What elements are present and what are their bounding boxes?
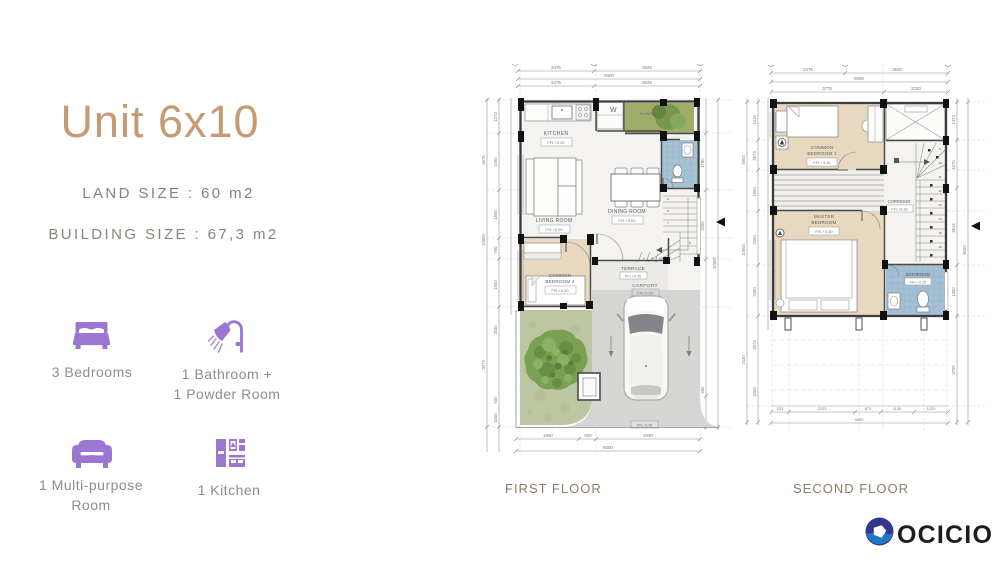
svg-text:3525: 3525: [642, 80, 652, 85]
svg-text:14: 14: [938, 217, 942, 221]
svg-text:LIVING ROOM: LIVING ROOM: [536, 218, 573, 224]
svg-text:2430: 2430: [741, 355, 746, 365]
svg-text:15: 15: [938, 231, 942, 235]
svg-text:1675: 1675: [951, 160, 956, 170]
svg-text:FFL-0.05: FFL-0.05: [637, 292, 652, 296]
svg-text:3750: 3750: [951, 365, 956, 375]
svg-text:3775: 3775: [822, 86, 832, 91]
svg-text:BEDROOM 2: BEDROOM 2: [545, 279, 575, 284]
svg-text:6000: 6000: [603, 445, 613, 450]
svg-text:CORRIDOR: CORRIDOR: [888, 199, 911, 204]
svg-text:FFL+0.00: FFL+0.00: [618, 218, 636, 223]
svg-text:3430: 3430: [643, 433, 653, 438]
svg-text:9000: 9000: [962, 245, 967, 255]
svg-text:FFL+3.30: FFL+3.30: [815, 229, 833, 234]
svg-text:FFL+3.30: FFL+3.30: [813, 160, 831, 165]
svg-text:3525: 3525: [892, 67, 902, 72]
svg-text:BEDROOM: BEDROOM: [811, 220, 836, 225]
svg-text:10: 10: [938, 161, 942, 165]
svg-text:6000: 6000: [854, 76, 864, 81]
svg-text:2475: 2475: [551, 65, 561, 70]
svg-text:PLANTER: PLANTER: [640, 112, 657, 116]
svg-text:2350: 2350: [752, 287, 757, 297]
svg-text:3073: 3073: [752, 340, 757, 350]
svg-text:2475: 2475: [551, 80, 561, 85]
svg-text:16: 16: [938, 245, 942, 249]
svg-text:4953: 4953: [741, 155, 746, 165]
svg-text:COMMON: COMMON: [549, 273, 572, 278]
svg-text:6000: 6000: [855, 417, 865, 422]
svg-text:1500: 1500: [493, 280, 498, 290]
svg-text:FFL+0.00: FFL+0.00: [551, 288, 569, 293]
svg-text:FFL+3.30: FFL+3.30: [891, 208, 907, 212]
svg-text:3525: 3525: [642, 65, 652, 70]
svg-text:KITCHEN: KITCHEN: [544, 131, 569, 137]
svg-text:FFL-0.45: FFL-0.45: [637, 424, 652, 428]
svg-text:1220: 1220: [927, 406, 937, 411]
svg-text:1000: 1000: [752, 387, 757, 397]
svg-text:10000: 10000: [741, 244, 746, 256]
svg-text:11: 11: [938, 175, 941, 179]
svg-text:1130: 1130: [893, 406, 902, 411]
svg-text:DINING ROOM: DINING ROOM: [608, 209, 646, 215]
svg-text:2673: 2673: [752, 151, 757, 161]
svg-text:1300: 1300: [951, 287, 956, 297]
svg-text:BEDROOM 1: BEDROOM 1: [807, 151, 837, 156]
svg-text:CARPORT: CARPORT: [632, 283, 657, 289]
svg-text:600: 600: [584, 433, 592, 438]
svg-text:1000: 1000: [493, 413, 498, 423]
svg-text:4675: 4675: [481, 155, 486, 165]
svg-text:1273: 1273: [493, 112, 498, 122]
svg-text:2475: 2475: [803, 67, 813, 72]
svg-text:1419: 1419: [752, 115, 757, 125]
svg-text:FFL+3.25: FFL+3.25: [910, 281, 926, 285]
svg-text:1800: 1800: [493, 210, 498, 220]
svg-text:BATHROOM: BATHROOM: [906, 272, 930, 277]
svg-text:2030: 2030: [493, 325, 498, 335]
svg-text:FFL+0.00: FFL+0.00: [547, 140, 565, 145]
svg-text:1460: 1460: [493, 157, 498, 167]
svg-text:COMMON: COMMON: [811, 145, 834, 150]
svg-text:6000: 6000: [604, 73, 614, 78]
svg-text:MASTER: MASTER: [814, 214, 835, 219]
svg-text:1950: 1950: [543, 433, 553, 438]
svg-text:533: 533: [777, 406, 784, 411]
svg-text:2220: 2220: [911, 86, 921, 91]
svg-text:FFL+0.00: FFL+0.00: [545, 227, 563, 232]
svg-text:1373: 1373: [951, 115, 956, 125]
svg-text:1780: 1780: [700, 158, 705, 168]
svg-text:1950: 1950: [752, 187, 757, 197]
svg-text:12: 12: [938, 189, 942, 193]
svg-text:W: W: [610, 107, 617, 114]
svg-text:600: 600: [493, 396, 498, 404]
svg-text:2450: 2450: [752, 235, 757, 245]
svg-text:873: 873: [865, 406, 872, 411]
svg-text:3614: 3614: [951, 223, 956, 233]
svg-text:13: 13: [938, 203, 942, 207]
svg-text:600: 600: [700, 386, 705, 394]
svg-text:2223: 2223: [818, 406, 828, 411]
svg-text:10000: 10000: [712, 257, 717, 269]
svg-text:3073: 3073: [481, 360, 486, 370]
svg-text:10000: 10000: [481, 234, 486, 246]
svg-text:FFL+0.05: FFL+0.05: [625, 275, 641, 279]
svg-text:TERRACE: TERRACE: [621, 266, 645, 271]
svg-text:750: 750: [493, 246, 498, 254]
